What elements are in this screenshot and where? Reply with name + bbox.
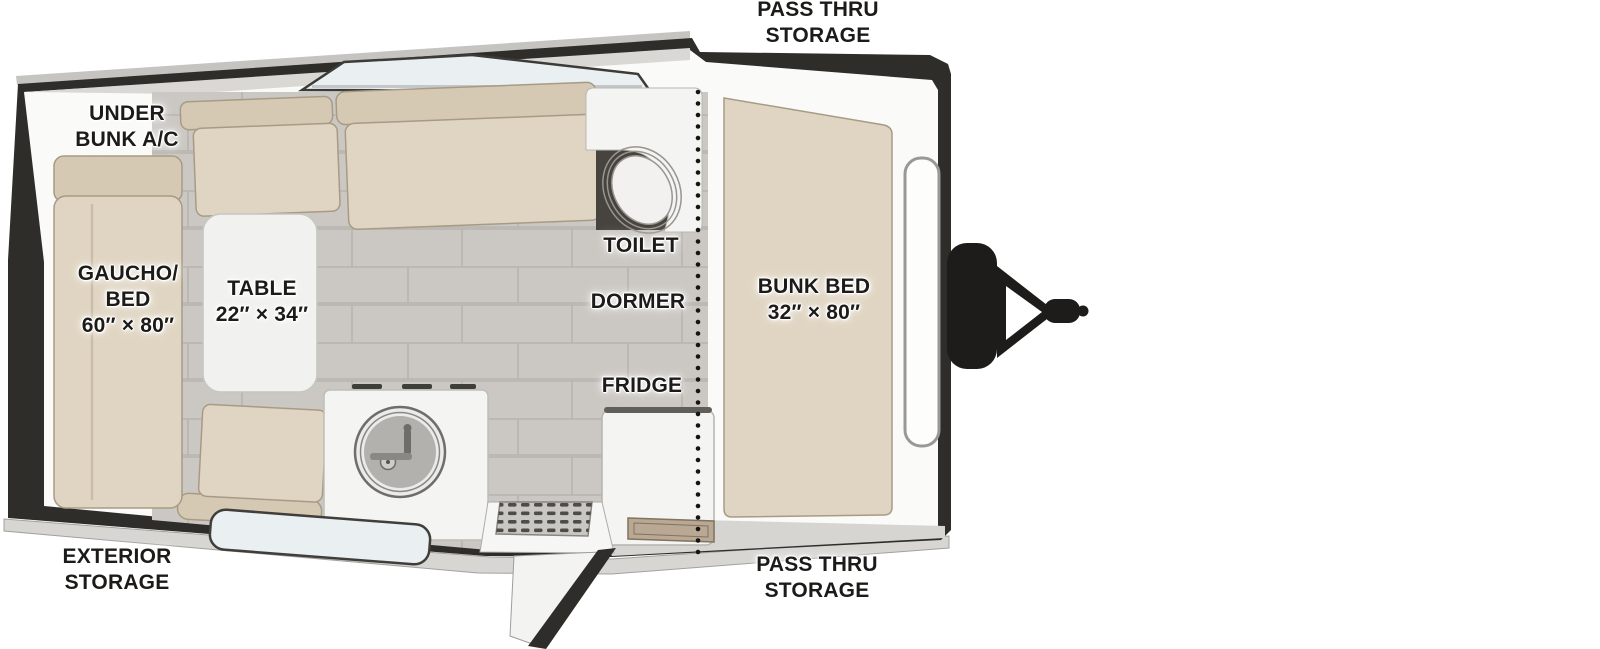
hitch-ball xyxy=(1078,306,1089,317)
dinette-table xyxy=(203,214,317,392)
floorplan-drawing xyxy=(0,0,1600,649)
toilet xyxy=(586,88,702,247)
entry-step xyxy=(496,502,592,536)
dinette-bench-top-right xyxy=(345,114,601,230)
propane-tank-cover xyxy=(947,243,997,369)
cabinet-hinges xyxy=(352,384,476,389)
sink xyxy=(355,407,445,497)
front-window xyxy=(905,158,939,446)
gaucho-bed xyxy=(54,196,182,508)
dinette-bench-bottom xyxy=(198,404,327,502)
gaucho-head-bolster xyxy=(54,156,182,202)
a-frame-hitch xyxy=(947,243,1089,369)
entry-door xyxy=(480,502,616,649)
bunk-bed xyxy=(724,98,892,517)
floorplan-canvas: PASS THRU STORAGE UNDER BUNK A/C GAUCHO/… xyxy=(0,0,1600,649)
storage-tray xyxy=(628,518,714,542)
sink-cabinet xyxy=(324,384,488,540)
hitch-coupler xyxy=(1044,299,1080,323)
dinette-bench-top-left xyxy=(193,123,340,216)
